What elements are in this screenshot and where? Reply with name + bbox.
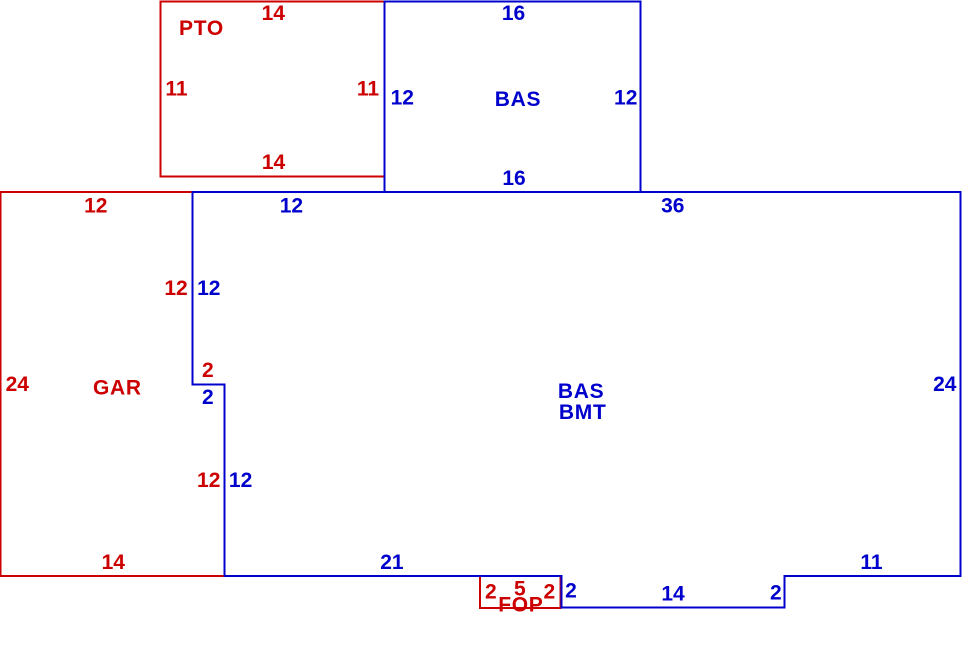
svg-text:2: 2 [543, 581, 555, 604]
svg-text:2: 2 [565, 580, 577, 603]
svg-text:BAS: BAS [495, 88, 541, 111]
svg-text:24: 24 [6, 373, 30, 396]
svg-text:FOP: FOP [498, 594, 543, 617]
svg-text:14: 14 [102, 551, 126, 574]
svg-text:PTO: PTO [179, 17, 224, 40]
svg-text:12: 12 [229, 469, 252, 492]
svg-text:21: 21 [380, 551, 404, 574]
svg-text:12: 12 [280, 195, 303, 218]
svg-text:16: 16 [502, 2, 525, 25]
svg-text:12: 12 [164, 277, 187, 300]
svg-text:2: 2 [202, 359, 214, 382]
svg-text:12: 12 [197, 277, 220, 300]
svg-text:11: 11 [860, 551, 883, 574]
svg-text:12: 12 [197, 469, 220, 492]
svg-text:11: 11 [357, 78, 380, 101]
svg-text:BMT: BMT [559, 401, 607, 424]
svg-text:GAR: GAR [93, 377, 142, 400]
svg-text:2: 2 [485, 581, 497, 604]
svg-text:12: 12 [84, 195, 107, 218]
svg-text:2: 2 [202, 386, 214, 409]
svg-text:16: 16 [502, 167, 525, 190]
svg-text:12: 12 [391, 87, 414, 110]
svg-text:11: 11 [165, 78, 188, 101]
svg-text:24: 24 [933, 373, 957, 396]
svg-text:14: 14 [262, 151, 286, 174]
svg-text:12: 12 [614, 87, 637, 110]
svg-text:14: 14 [661, 583, 685, 606]
svg-text:36: 36 [661, 195, 684, 218]
svg-text:BAS: BAS [558, 380, 604, 403]
svg-text:14: 14 [262, 2, 286, 25]
svg-text:2: 2 [770, 582, 782, 605]
